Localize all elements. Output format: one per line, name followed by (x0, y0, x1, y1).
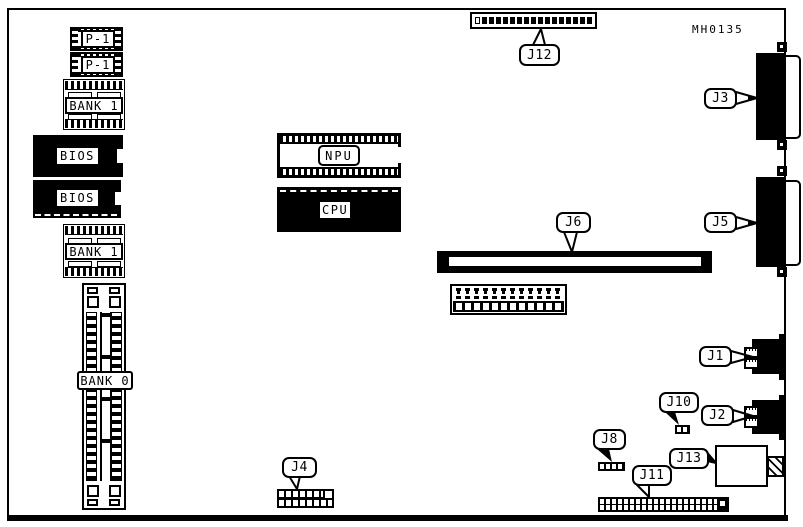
label-j4: J4 (282, 457, 317, 478)
label-j2: J2 (701, 405, 734, 426)
j8-pointer (597, 449, 612, 462)
label-j3: J3 (704, 88, 737, 109)
j10-pointer (665, 412, 679, 425)
label-j13: J13 (669, 448, 709, 469)
label-j1: J1 (699, 346, 732, 367)
j11-pointer (637, 485, 649, 497)
label-j10: J10 (659, 392, 699, 413)
label-j11: J11 (632, 465, 672, 486)
motherboard-diagram: MH0135 P-1 P-1 BANK 1 BIOS BIOS (0, 0, 803, 527)
j6-pointer (564, 232, 577, 252)
j12-pointer (533, 29, 545, 45)
label-j12: J12 (519, 44, 560, 66)
label-j6: J6 (556, 212, 591, 233)
label-j8: J8 (593, 429, 626, 450)
label-j5: J5 (704, 212, 737, 233)
